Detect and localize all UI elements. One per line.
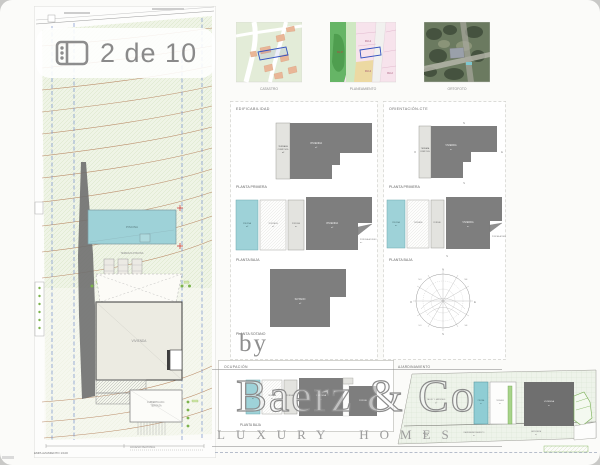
- panel-title: ORIENTACIÓN-CTE: [389, 106, 428, 111]
- pool-label: PISCINA: [126, 225, 138, 229]
- vivienda-label: VIVIENDA: [445, 144, 457, 147]
- lightgreen-band: [346, 22, 356, 82]
- compass-letter: O: [410, 300, 412, 304]
- listing-photo-plan-sheet[interactable]: PISCINA TERRAZA PISCINA: [0, 0, 600, 465]
- area-value: m²: [331, 226, 334, 229]
- area-value: m²: [282, 151, 285, 154]
- photo-count-label: 2 de 10: [100, 38, 197, 69]
- terrace-label: TERRAZA: [278, 145, 288, 148]
- gallery-icon: [54, 39, 90, 67]
- area-value: m²: [467, 225, 470, 228]
- house-footprint: VIVIENDA: [96, 302, 182, 380]
- terrace-label: COMP. 50%: [420, 151, 430, 153]
- compass-letter: N: [463, 122, 465, 125]
- caption-planta-baja: PLANTA BAJA: [236, 258, 260, 262]
- vivienda-label: VIVIENDA: [310, 141, 322, 145]
- pool-label: PISCINA: [392, 221, 400, 224]
- compass-letter: N: [442, 268, 444, 272]
- gallery-viewer: PISCINA TERRAZA PISCINA: [0, 0, 600, 465]
- porch-label: PORCHE: [292, 223, 301, 225]
- catastro-label: CATASTRO: [260, 87, 278, 91]
- zone-label: RU-2: [365, 69, 372, 73]
- vivienda-label: VIVIENDA: [544, 400, 555, 403]
- terrace-label: TERRAZA: [268, 222, 278, 225]
- pool-dot: [466, 62, 472, 65]
- panel-edificabilidad: EDIFICABILIDAD TERRAZA COMP. 50% m² VIVI…: [230, 101, 378, 360]
- compass-letter: SO: [418, 325, 421, 327]
- house-label: VIVIENDA: [132, 339, 148, 343]
- pool-terrace-label: TERRAZA PISCINA: [120, 251, 143, 255]
- map-catastro: CATASTRO: [236, 22, 302, 94]
- zone-label: RU-2: [365, 39, 372, 43]
- watermark-tagline: LUXURY HOMES: [217, 427, 499, 443]
- terrace-label: TERRAZA: [421, 147, 430, 150]
- porch-label: PORCHE: [433, 222, 441, 224]
- jardinera-label: JARDINERA: [531, 430, 542, 433]
- house-section: [524, 382, 574, 426]
- annex-roof: CUBIERTA ACC. TERRAZA: [130, 390, 182, 422]
- caption-planta-baja: PLANTA BAJA: [389, 258, 413, 262]
- area-value: m²: [315, 146, 318, 149]
- sotano-label: SOTANO: [295, 297, 306, 301]
- caption-planta-primera: PLANTA PRIMERA: [389, 185, 420, 189]
- access-note: ACCESO PEATONAL: [130, 445, 156, 449]
- area-value: m²: [395, 224, 398, 227]
- compass-letter: S: [442, 332, 444, 336]
- porch-access-label: PORCHE ACCESO: [360, 238, 377, 241]
- map-ortofoto: ORTOFOTO: [424, 22, 490, 94]
- watermark-brand: Baerz & Co: [210, 369, 502, 422]
- panel-orientacion: ORIENTACIÓN-CTE TERRAZA COMP. 50% VIVIEN…: [383, 101, 506, 360]
- page-corner-smudge: [2, 456, 14, 459]
- caption-planta-primera: PLANTA PRIMERA: [236, 185, 267, 189]
- terrace-label: COMP. 50%: [278, 149, 289, 151]
- roof-projection: [96, 274, 182, 302]
- watermark-rule-bottom: [212, 446, 502, 447]
- planeamiento-label: PLANEAMIENTO: [350, 87, 377, 91]
- sheet-bottom-dashed-line: [215, 452, 597, 453]
- area-value: m²: [299, 302, 302, 305]
- zone-label: RL-P: [337, 50, 343, 54]
- area-value: m²: [450, 148, 453, 151]
- panel-title: EDIFICABILIDAD: [236, 107, 270, 111]
- area-value: m²: [295, 225, 298, 228]
- photo-count-badge[interactable]: 2 de 10: [36, 28, 215, 78]
- area-value: m²: [272, 225, 275, 228]
- hedge: [508, 386, 512, 424]
- site-plan-caption: EMPLAZAMIENTO 1/100: [34, 451, 68, 455]
- plan-planta-baja: PISCINA m² TERRAZA m² PORCHE m² VIVIENDA…: [236, 197, 377, 250]
- zone-label: RU-2: [387, 72, 393, 75]
- terrace-label: TERRAZA: [414, 221, 424, 224]
- area-value: m²: [360, 241, 363, 244]
- annex-label-2: TERRAZA: [150, 405, 162, 408]
- vivienda-label: VIVIENDA: [462, 221, 474, 224]
- compass-letter: O: [414, 151, 416, 154]
- compass-letter: E: [474, 300, 476, 304]
- watermark-by: by: [239, 330, 268, 358]
- vivienda-label: VIVIENDA: [326, 221, 338, 225]
- pool: PISCINA: [88, 210, 176, 244]
- compass-letter: NO: [418, 279, 422, 281]
- area-value: m²: [246, 225, 249, 228]
- compass-letter: NE: [464, 279, 468, 281]
- building-roof: [450, 48, 465, 59]
- ortofoto-label: ORTOFOTO: [447, 87, 466, 91]
- porch-access-label: PORCHE ACCESO: [492, 235, 506, 238]
- pool-label: PISCINA: [243, 222, 252, 225]
- map-planeamiento: RL-P RU-2 RU-2 RU-2 PLANEAMIENTO: [330, 22, 396, 94]
